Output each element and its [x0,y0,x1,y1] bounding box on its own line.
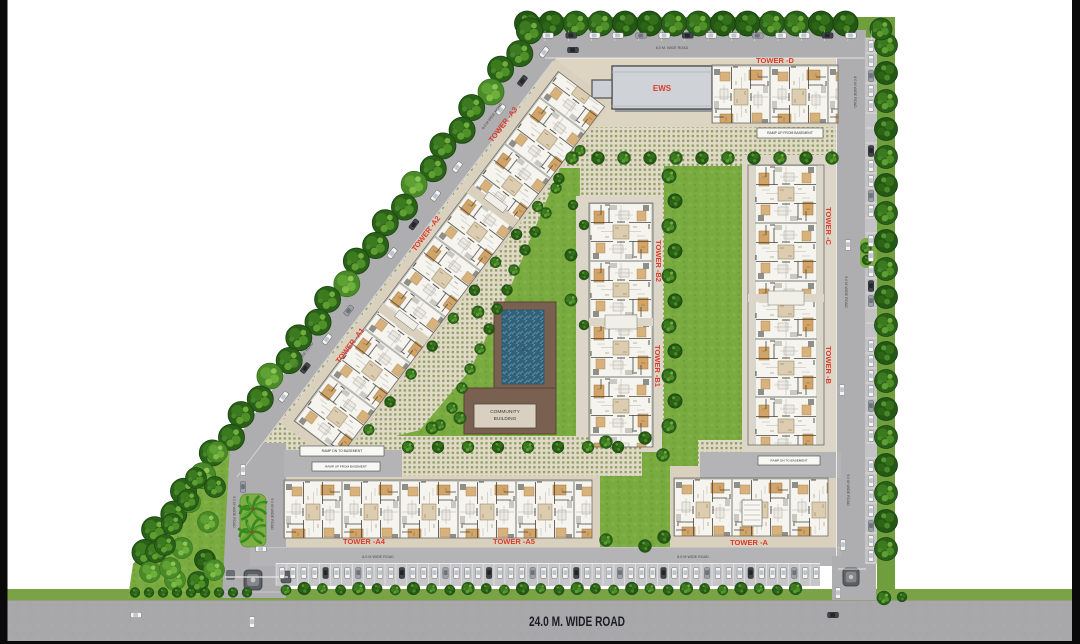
svg-text:EWS: EWS [653,84,672,93]
svg-text:TOWER -D: TOWER -D [756,56,794,65]
svg-text:8.0 M. WIDE ROAD: 8.0 M. WIDE ROAD [656,46,689,50]
svg-text:TOWER -C: TOWER -C [824,207,833,245]
svg-text:RAMP UP FROM BASEMENT: RAMP UP FROM BASEMENT [767,131,813,135]
svg-text:TOWER -B1: TOWER -B1 [653,345,662,387]
svg-text:COMMUNITY: COMMUNITY [490,409,520,415]
svg-text:9.0 M WIDE ROAD: 9.0 M WIDE ROAD [270,498,274,530]
svg-text:9.0 M WIDE ROAD: 9.0 M WIDE ROAD [232,496,236,528]
svg-text:9.0 M WIDE ROAD: 9.0 M WIDE ROAD [846,474,850,506]
svg-text:TOWER -A5: TOWER -A5 [493,537,535,546]
svg-text:TOWER -B: TOWER -B [824,346,833,384]
svg-text:RAMP UP FROM BASEMENT: RAMP UP FROM BASEMENT [325,465,367,469]
svg-text:RAMP DN TO BASEMENT: RAMP DN TO BASEMENT [770,459,807,463]
svg-text:BUILDING: BUILDING [494,416,517,422]
svg-text:8.0 M WIDE ROAD: 8.0 M WIDE ROAD [362,555,394,559]
svg-text:8.0 M WIDE ROAD: 8.0 M WIDE ROAD [677,555,709,559]
svg-text:TOWER -B2: TOWER -B2 [654,240,663,282]
svg-text:8.0 M WIDE ROAD: 8.0 M WIDE ROAD [853,76,857,108]
svg-text:TOWER -A: TOWER -A [730,538,768,547]
svg-text:POOL: POOL [517,347,529,352]
svg-text:TOWER -A4: TOWER -A4 [343,537,386,546]
svg-text:RAMP DN TO BASEMENT: RAMP DN TO BASEMENT [322,449,363,453]
svg-text:24.0 M. WIDE ROAD: 24.0 M. WIDE ROAD [529,613,625,629]
svg-text:9.0 M WIDE ROAD: 9.0 M WIDE ROAD [844,276,848,308]
